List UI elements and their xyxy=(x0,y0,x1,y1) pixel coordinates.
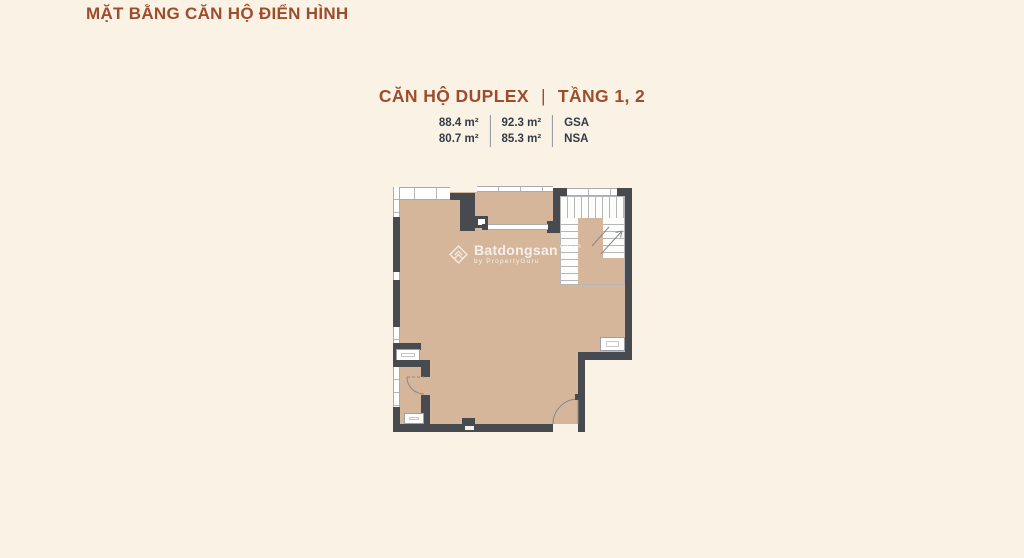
unit-name: CĂN HỘ DUPLEX xyxy=(379,86,529,106)
gsa-area-value: 88.4 m² xyxy=(439,115,479,131)
nsa-area-value-2: 85.3 m² xyxy=(502,131,542,147)
watermark: Batdongsan com.vn by PropertyGuru xyxy=(449,243,581,266)
duplex-floor-plan xyxy=(393,182,632,434)
gsa-area-value-2: 92.3 m² xyxy=(502,115,542,131)
gsa-label: GSA xyxy=(564,115,589,131)
nsa-label: NSA xyxy=(564,131,589,147)
unit-title-separator: | xyxy=(541,86,546,106)
stair-break-line xyxy=(592,227,609,246)
nsa-area-value: 80.7 m² xyxy=(439,131,479,147)
batdongsan-diamond-icon xyxy=(449,245,468,264)
entrance-door-arc xyxy=(553,399,578,424)
watermark-byline: by PropertyGuru xyxy=(474,259,581,266)
watermark-text: Batdongsan com.vn by PropertyGuru xyxy=(474,243,581,266)
area-specs-table: 88.4 m² 80.7 m² 92.3 m² 85.3 m² GSA NSA xyxy=(428,115,600,147)
entrance-door-hinge xyxy=(575,394,581,400)
page-title: MẶT BẰNG CĂN HỘ ĐIỂN HÌNH xyxy=(86,4,349,24)
watermark-domain: com.vn xyxy=(560,244,581,250)
specs-column-alt-values: 92.3 m² 85.3 m² xyxy=(491,115,554,147)
unit-floors: TẦNG 1, 2 xyxy=(558,86,645,106)
specs-column-labels: GSA NSA xyxy=(553,115,600,147)
door-swings-and-stair-marks xyxy=(393,182,632,434)
stair-direction-line xyxy=(601,231,622,254)
watermark-brand: Batdongsan xyxy=(474,243,558,257)
bathroom-door-arc xyxy=(407,377,424,394)
unit-title: CĂN HỘ DUPLEX|TẦNG 1, 2 xyxy=(0,86,1024,107)
specs-column-gsa-values: 88.4 m² 80.7 m² xyxy=(428,115,491,147)
